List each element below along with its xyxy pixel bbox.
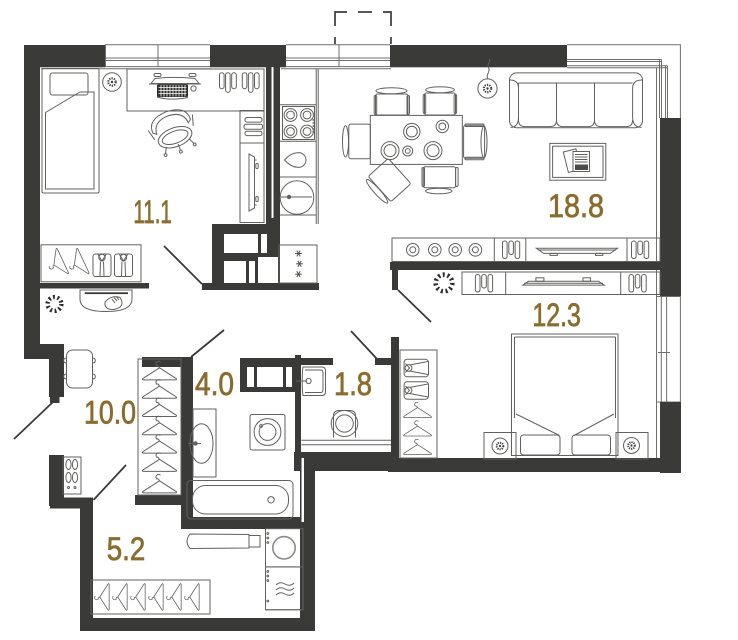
svg-text:18.8: 18.8 xyxy=(548,188,604,224)
svg-text:10.0: 10.0 xyxy=(84,395,136,431)
svg-text:12.3: 12.3 xyxy=(532,297,581,333)
svg-text:11.1: 11.1 xyxy=(133,194,172,230)
svg-text:1.8: 1.8 xyxy=(334,366,372,402)
svg-text:5.2: 5.2 xyxy=(107,531,146,567)
svg-text:4.0: 4.0 xyxy=(195,366,234,402)
